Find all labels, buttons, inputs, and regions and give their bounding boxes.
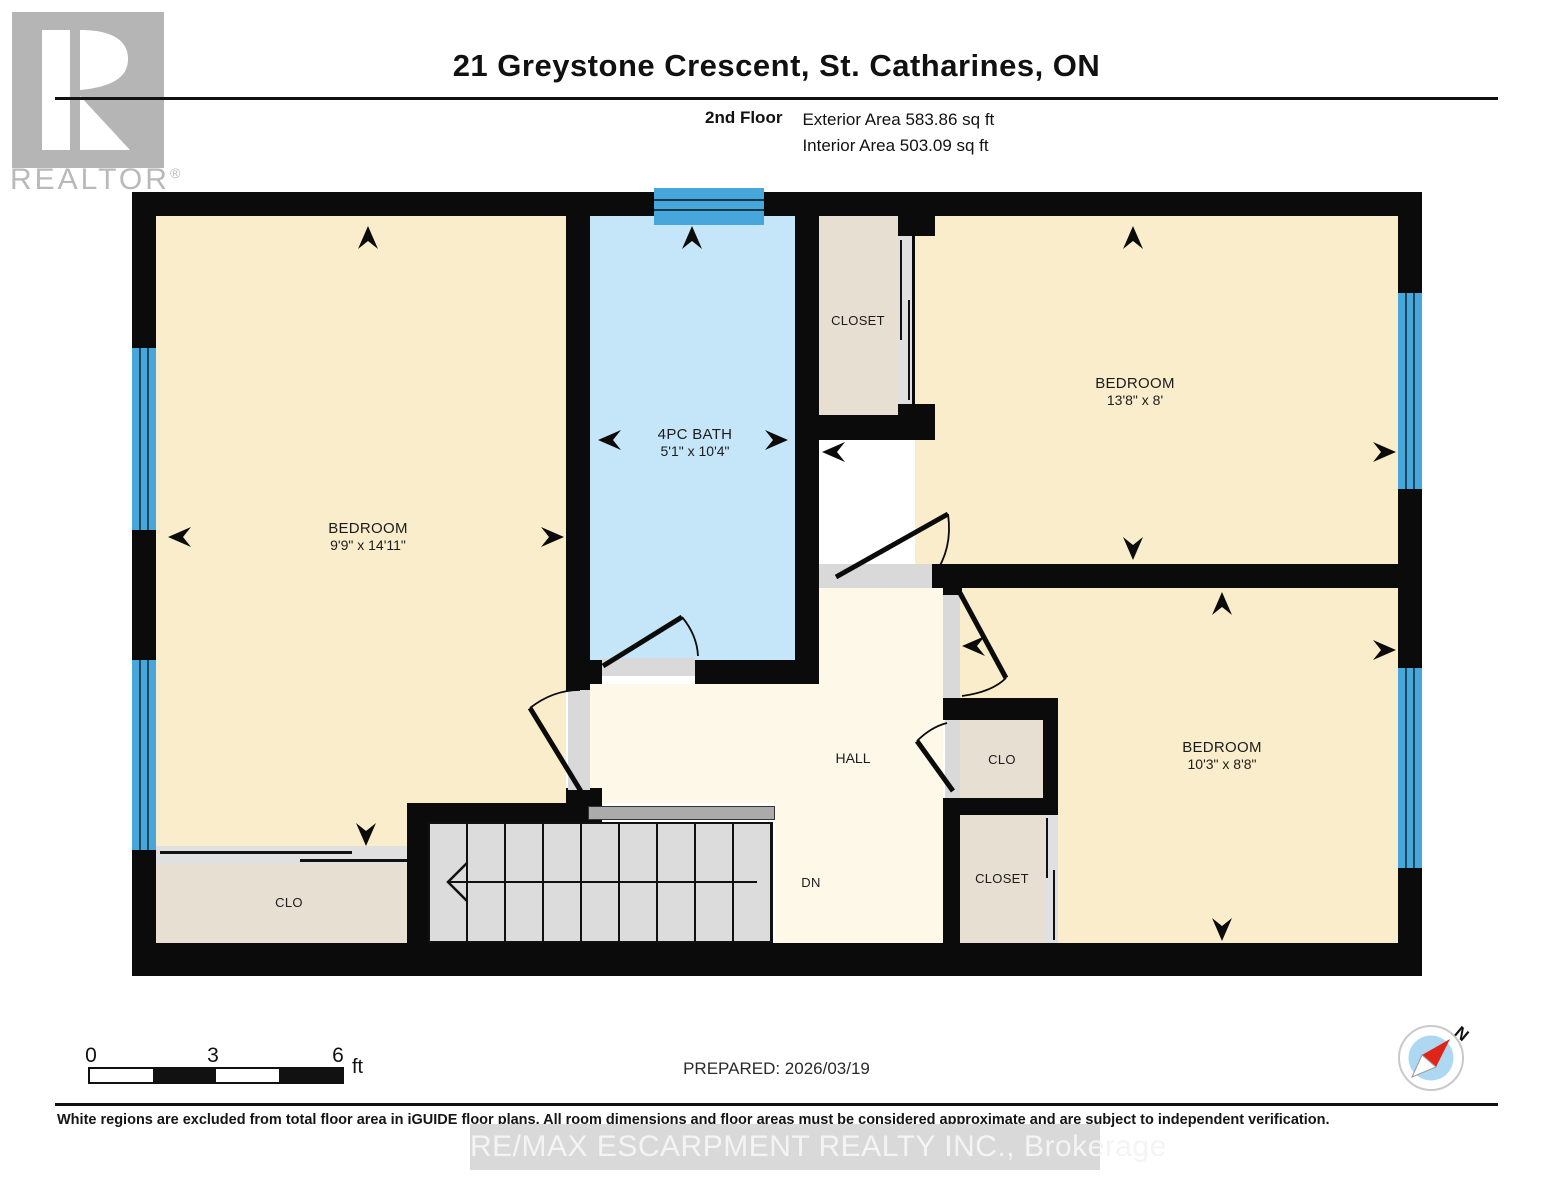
sliding-door-panel-line [160,851,352,854]
wall-closet-top-jamb-lower [898,404,935,440]
wall-outer-left [132,192,156,976]
wall-bedroom-top-right-bottom [932,564,1398,588]
staircase-treads [428,822,773,943]
wall-bath-bottom-right [695,660,819,684]
hall-label: HALL [803,750,903,766]
hall-main-floor [590,684,943,803]
clo-right-label: CLO [962,752,1042,767]
wall-closet-top-jamb-upper [898,192,935,236]
room-name: BEDROOM [1005,375,1265,392]
window-right-lower [1398,668,1422,868]
wall-clo-right-side [1043,698,1058,798]
footer-rule [55,1103,1498,1106]
wall-clo-right-top [943,698,1058,720]
clo-right-door-threshold [945,720,960,798]
room-dims: 13'8" x 8' [1005,392,1265,408]
scale-bar [88,1067,344,1084]
bedroom-right-label: BEDROOM 10'3" x 8'8" [1092,739,1352,772]
bedroom-right-door-threshold [943,595,960,698]
bath-label: 4PC BATH 5'1" x 10'4" [595,426,795,459]
floor-label: 2nd Floor [705,107,782,129]
window-left-lower [132,660,156,850]
wall-bath-left [566,192,590,692]
page-title: 21 Greystone Crescent, St. Catharines, O… [0,48,1553,84]
room-dims: 9'9" x 14'11" [238,537,498,553]
brokerage-watermark: RE/MAX ESCARPMENT REALTY INC., Brokerage [470,1124,1100,1170]
bedroom-left-label: BEDROOM 9'9" x 14'11" [238,520,498,553]
hall-upper-floor [819,588,943,684]
wall-stairwell-top [407,803,588,823]
wall-outer-bottom [132,943,1422,976]
bedroom-left-door-threshold [568,690,590,790]
compass-icon: N [1396,1019,1470,1093]
interior-area: Interior Area 503.09 sq ft [802,133,994,159]
staircase-rail [588,806,775,820]
dimension-arrow-left [822,442,845,462]
bath-door-threshold [602,658,695,676]
room-name: BEDROOM [1092,739,1352,756]
header-rule [55,97,1498,100]
clo-bottom-left-label: CLO [239,895,339,910]
closet-top-label: CLOSET [806,313,910,328]
realtor-logo [12,12,172,172]
room-dims: 5'1" x 10'4" [595,443,795,459]
realtor-r-stem [42,30,70,150]
scale-segment [279,1069,342,1082]
window-left-upper [132,348,156,530]
hall-lower-floor [775,803,943,943]
closet-bottom-right-label: CLOSET [952,871,1052,886]
bedroom-top-right-label: BEDROOM 13'8" x 8' [1005,375,1265,408]
area-summary: Exterior Area 583.86 sq ft Interior Area… [802,107,994,159]
exterior-area: Exterior Area 583.86 sq ft [802,107,994,133]
wall-closet-top-thin [912,236,915,404]
room-name: BEDROOM [238,520,498,537]
wall-outer-top [132,192,1422,216]
wall-clo-closet-divider [943,798,1058,815]
scale-segment [216,1069,279,1082]
floor-summary: 2nd Floor Exterior Area 583.86 sq ft Int… [705,107,994,159]
sliding-door-panel-line [1046,818,1048,878]
scale-segment [153,1069,216,1082]
sliding-door-panel-line [300,859,407,862]
wall-hall-stub [943,576,962,595]
floorplan-page: REALTOR® 21 Greystone Crescent, St. Cath… [0,0,1553,1200]
sliding-door-panel-line [1053,870,1055,940]
scale-segment [90,1069,153,1082]
wall-bath-bottom-left [566,660,602,684]
room-name: 4PC BATH [595,426,795,443]
room-dims: 10'3" x 8'8" [1092,756,1352,772]
window-right-upper [1398,293,1422,489]
bedroom-top-right-door-threshold [819,564,932,588]
stairs-dn-label: DN [781,875,841,890]
window-top-bath [654,188,764,225]
registered-symbol: ® [170,165,183,181]
